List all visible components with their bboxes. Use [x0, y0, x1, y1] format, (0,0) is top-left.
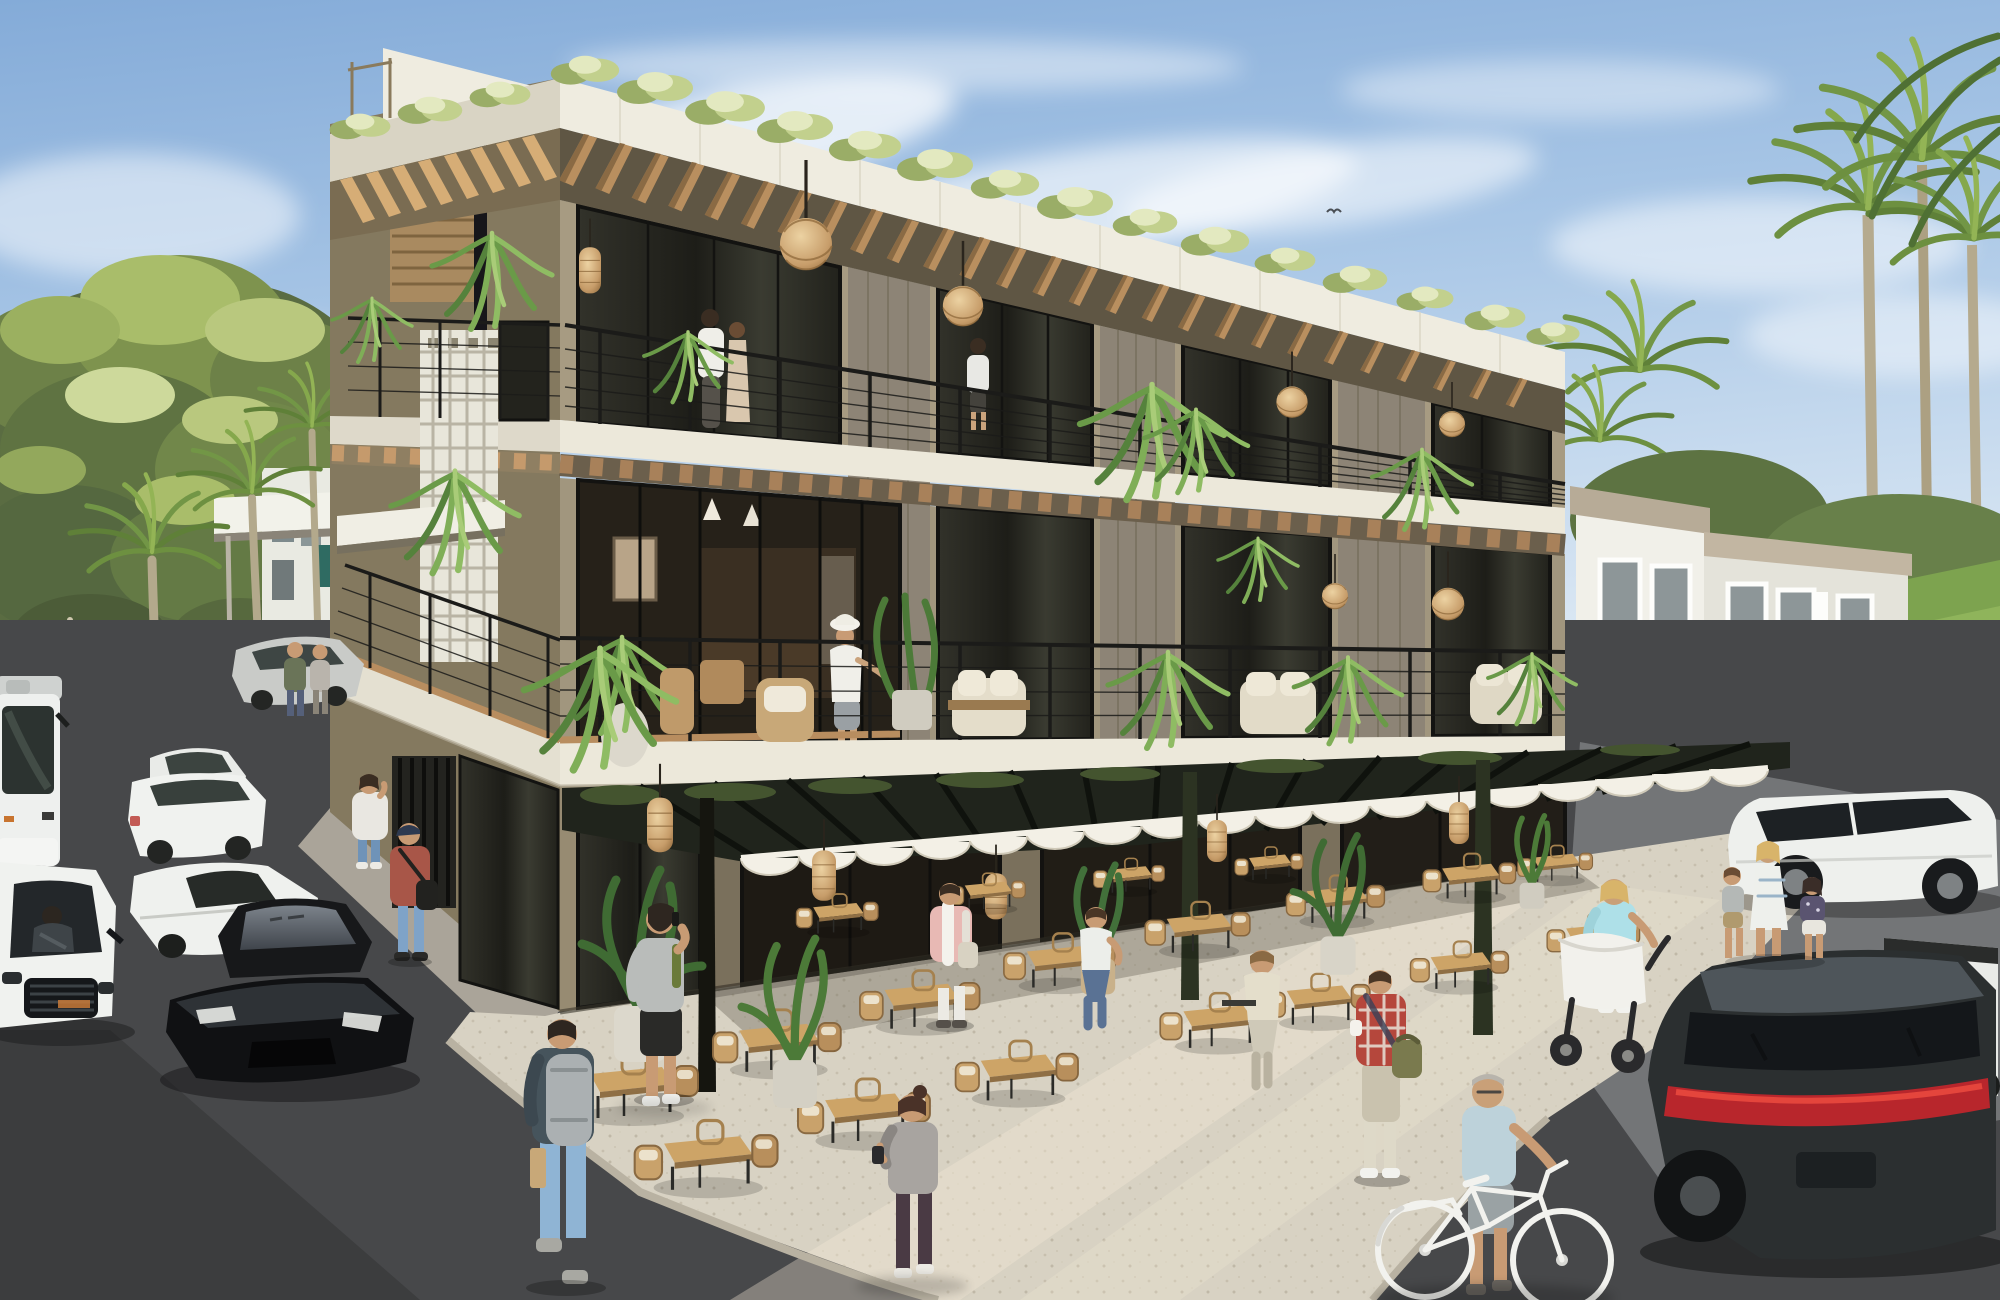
render-viewport: Architectural rendering — three-story bo… [0, 0, 2000, 1300]
dark-audi-suv [1640, 950, 2000, 1278]
tour-bus [0, 676, 68, 879]
architectural-render: Architectural rendering — three-story bo… [0, 0, 2000, 1300]
